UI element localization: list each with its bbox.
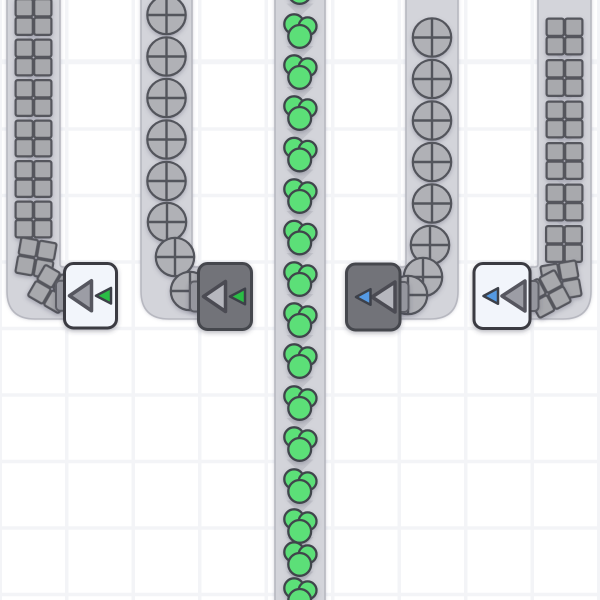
belt-item-circle — [413, 60, 451, 98]
belt-item-circle — [147, 79, 185, 117]
belt-item-circle — [148, 203, 186, 241]
factory-scene — [0, 0, 600, 600]
belt-item-circle — [147, 162, 185, 200]
belt-item-circle — [147, 37, 185, 75]
game-viewport[interactable] — [0, 0, 600, 600]
machine-green-2[interactable] — [190, 264, 252, 330]
machine-blue-2[interactable] — [474, 264, 539, 329]
belt-item-circle — [413, 143, 451, 181]
belt-item-circle — [413, 18, 451, 56]
belt-item-circle — [147, 120, 185, 158]
belt-item-cluster — [284, 578, 316, 600]
belt-circles-left-items — [147, 0, 209, 310]
belt-item-circle — [156, 238, 194, 276]
machine-blue-1[interactable] — [347, 264, 409, 330]
machine-green-1[interactable] — [56, 264, 117, 329]
belt-item-circle — [147, 0, 185, 34]
belt-item-circle — [413, 101, 451, 139]
belt-item-circle — [413, 184, 451, 222]
